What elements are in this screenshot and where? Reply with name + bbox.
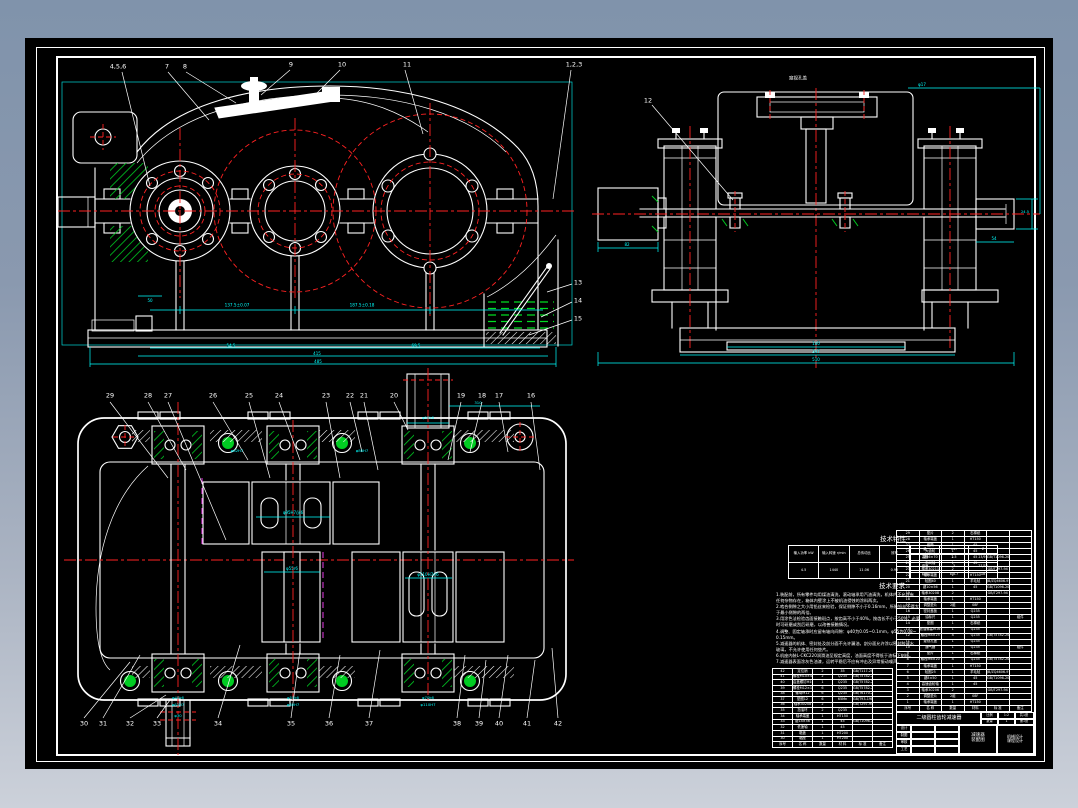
oil-filler-assembly xyxy=(215,77,428,132)
parts-list-right: 29垫片2石棉纸28轴承端盖1HT15027套筒14526大齿轮14525键16… xyxy=(896,530,1032,712)
cad-preview-stage: 4,5,678910111,2,312131415292827262524232… xyxy=(0,0,1078,808)
table: 29垫片2石棉纸28轴承端盖1HT15027套筒14526大齿轮14525键16… xyxy=(896,530,1032,712)
tech-table-left: 输入功率 kW输入转速 r/min总传动比效率4.5144011.060.96 xyxy=(788,545,910,579)
front-view xyxy=(58,70,575,367)
org-name: 机械设计 课程设计 xyxy=(996,724,1034,754)
table-cell: 材 料 xyxy=(833,742,853,748)
low-speed-gear-pair xyxy=(262,552,504,642)
table-cell: 备注 xyxy=(1009,705,1032,711)
table-cell: 备注 xyxy=(873,742,893,748)
table-cell: 输入功率 kW xyxy=(789,546,819,563)
table-cell: 输入转速 r/min xyxy=(819,546,849,563)
table-cell: 数量 xyxy=(813,742,833,748)
table-cell: 名 称 xyxy=(919,705,942,711)
high-speed-gear-pair xyxy=(202,478,379,548)
sign-blank xyxy=(934,745,960,754)
table-cell: 标 准 xyxy=(853,742,873,748)
table-cell: 材料 xyxy=(964,705,987,711)
bearings xyxy=(152,426,454,692)
flange-bolts xyxy=(722,191,858,232)
table-cell: 11.06 xyxy=(849,562,879,579)
table-cell: 1440 xyxy=(819,562,849,579)
parts-list-left: 42定位销235GB/T117-200041螺栓M10×402Q235GB/T5… xyxy=(772,668,893,748)
front-view-dimensions xyxy=(90,296,556,367)
table: 输入功率 kW输入转速 r/min总传动比效率4.5144011.060.96 xyxy=(788,545,910,579)
table-cell: 序号 xyxy=(773,742,793,748)
left-bearing-tower xyxy=(652,126,728,350)
oil-level-gauge xyxy=(484,235,558,346)
top-section-view xyxy=(64,368,574,755)
table-cell: 总传动比 xyxy=(849,546,879,563)
table-cell: 标 准 xyxy=(987,705,1010,711)
table-cell: 4.5 xyxy=(789,562,819,579)
right-bearing-tower xyxy=(918,126,998,350)
sign-blank xyxy=(910,745,936,754)
table-cell: 数量 xyxy=(942,705,965,711)
doc-name: 减速器 装配图 xyxy=(958,724,998,754)
table: 42定位销235GB/T117-200041螺栓M10×402Q235GB/T5… xyxy=(772,668,893,748)
side-view xyxy=(592,88,1040,368)
table-cell: 名 称 xyxy=(793,742,813,748)
title-block: 二级圆柱齿轮减速器比例1:2共1张数量1第1张设计制图审核工艺减速器 装配图机械… xyxy=(896,712,1032,752)
table-cell: 序号 xyxy=(897,705,920,711)
